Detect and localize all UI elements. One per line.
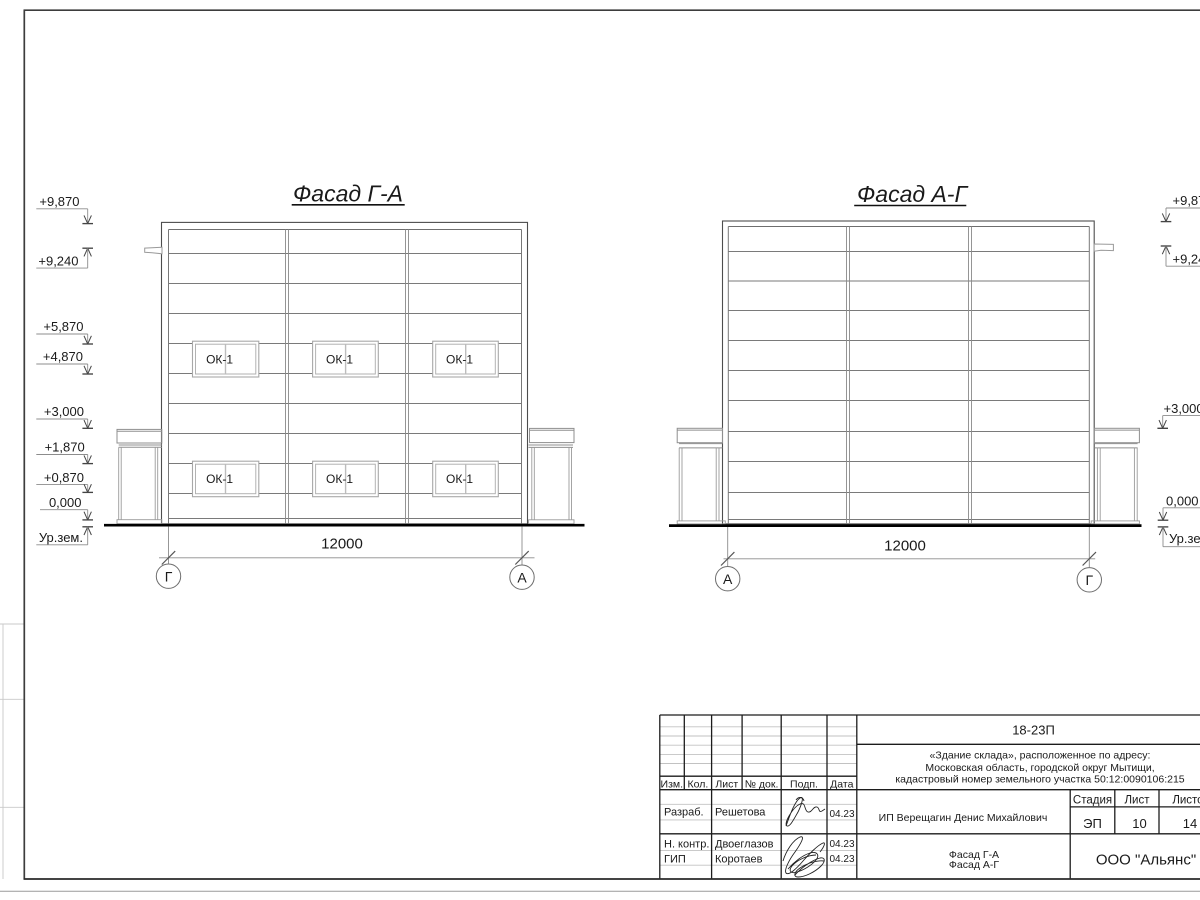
svg-text:Ур.зем.: Ур.зем.: [1169, 531, 1200, 546]
svg-text:Г: Г: [165, 569, 173, 585]
svg-text:12000: 12000: [321, 536, 363, 553]
svg-text:Фасад А-Г: Фасад А-Г: [949, 859, 999, 871]
svg-text:+4,870: +4,870: [43, 349, 83, 364]
svg-text:0,000: 0,000: [1166, 494, 1199, 509]
svg-text:04.23: 04.23: [829, 854, 854, 865]
svg-text:ОК-1: ОК-1: [206, 352, 233, 366]
svg-text:ИП Верещагин Денис Михайлович: ИП Верещагин Денис Михайлович: [879, 812, 1048, 824]
svg-text:«Здание склада», расположенное: «Здание склада», расположенное по адресу…: [930, 750, 1151, 762]
svg-text:ОК-1: ОК-1: [326, 352, 353, 366]
svg-text:ОК-1: ОК-1: [326, 472, 353, 486]
svg-text:Ур.зем.: Ур.зем.: [39, 530, 83, 545]
svg-text:04.23: 04.23: [829, 839, 854, 850]
svg-text:кадастровый номер земельного у: кадастровый номер земельного участка 50:…: [895, 774, 1184, 786]
svg-text:+3,000: +3,000: [44, 404, 84, 419]
svg-text:Лист: Лист: [715, 778, 738, 790]
svg-text:Разраб.: Разраб.: [664, 807, 704, 819]
svg-text:Двоеглазов: Двоеглазов: [715, 838, 774, 850]
svg-text:+9,870: +9,870: [1173, 193, 1200, 208]
svg-text:+9,240: +9,240: [1173, 251, 1200, 266]
svg-text:18-23П: 18-23П: [1012, 723, 1055, 738]
svg-text:14: 14: [1183, 816, 1197, 831]
svg-text:Фасад Г-А: Фасад Г-А: [293, 181, 403, 207]
svg-text:Г: Г: [1086, 572, 1094, 588]
svg-text:ОК-1: ОК-1: [206, 472, 233, 486]
svg-text:Кол.: Кол.: [688, 778, 709, 790]
svg-text:04.23: 04.23: [829, 809, 854, 820]
svg-text:ГИП: ГИП: [664, 853, 686, 865]
svg-text:А: А: [723, 571, 733, 587]
svg-text:Лист: Лист: [1125, 795, 1151, 807]
svg-text:А: А: [517, 570, 527, 586]
svg-text:Коротаев: Коротаев: [715, 853, 763, 865]
svg-text:+9,870: +9,870: [39, 194, 79, 209]
svg-text:ОК-1: ОК-1: [446, 352, 473, 366]
svg-text:Фасад А-Г: Фасад А-Г: [857, 181, 968, 207]
svg-text:ООО "Альянс": ООО "Альянс": [1096, 852, 1196, 869]
svg-text:12000: 12000: [884, 538, 926, 555]
svg-text:Московская область, городской: Московская область, городской округ Мыти…: [925, 762, 1154, 774]
svg-text:+0,870: +0,870: [44, 470, 84, 485]
svg-text:10: 10: [1132, 816, 1146, 831]
svg-text:Листов: Листов: [1172, 795, 1200, 807]
svg-text:Изм.: Изм.: [661, 778, 684, 790]
svg-text:Подп.: Подп.: [790, 778, 818, 790]
svg-text:ОК-1: ОК-1: [446, 472, 473, 486]
svg-text:ЭП: ЭП: [1083, 816, 1102, 831]
svg-text:Стадия: Стадия: [1073, 795, 1112, 807]
svg-text:№ док.: № док.: [745, 778, 779, 790]
svg-text:+5,870: +5,870: [43, 319, 83, 334]
svg-text:+1,870: +1,870: [45, 440, 85, 455]
svg-text:Дата: Дата: [830, 778, 853, 790]
svg-text:Н. контр.: Н. контр.: [664, 838, 709, 850]
svg-text:0,000: 0,000: [49, 495, 82, 510]
svg-text:Решетова: Решетова: [715, 807, 766, 819]
svg-text:+3,000: +3,000: [1164, 401, 1200, 416]
svg-text:+9,240: +9,240: [38, 253, 78, 268]
